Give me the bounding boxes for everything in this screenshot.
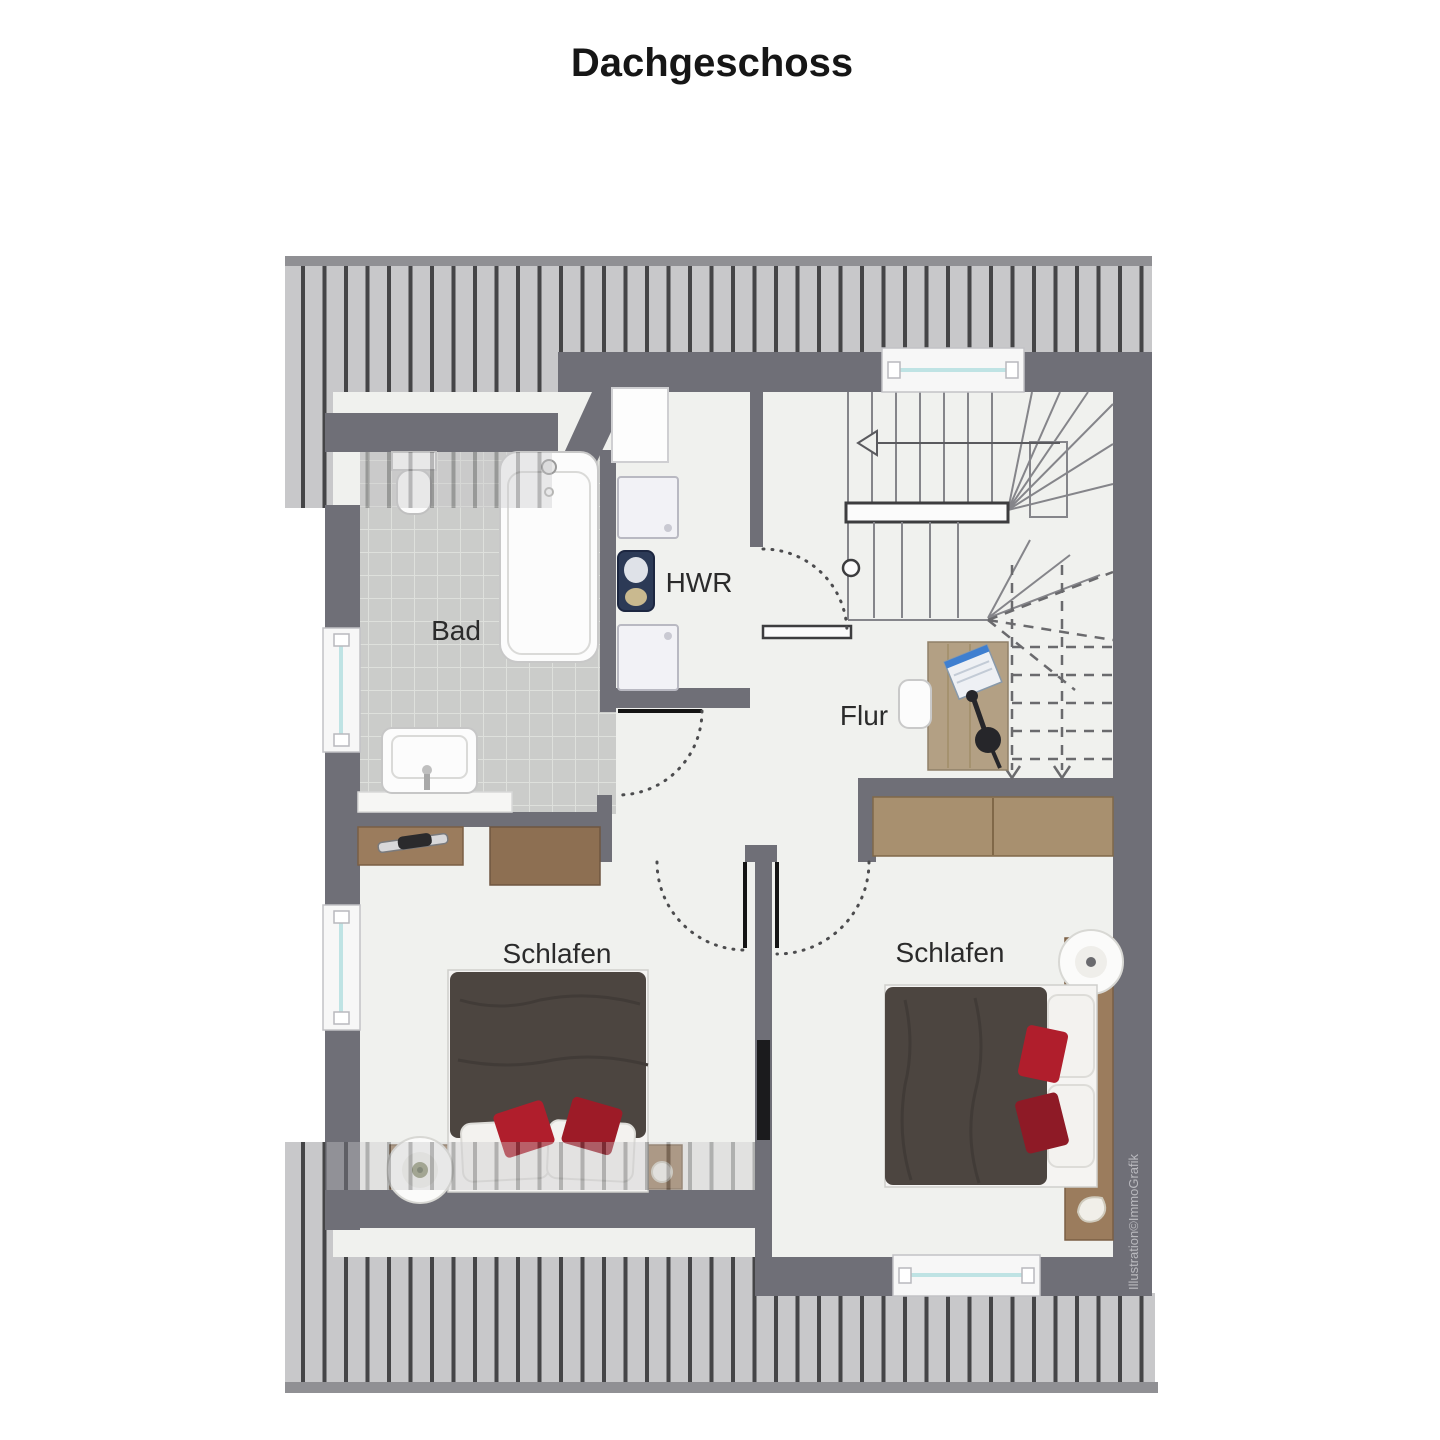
- nightstand-decor-right: [1078, 1197, 1105, 1222]
- wall-divider-head: [745, 845, 777, 862]
- wall-bathroom-bottom: [325, 812, 600, 827]
- stair-handrail: [846, 503, 1008, 522]
- wall-bad-hwr: [600, 450, 616, 712]
- page-title: Dachgeschoss: [571, 41, 853, 85]
- wall-left: [325, 505, 360, 1230]
- dresser: [490, 827, 600, 885]
- window-bathroom: [323, 628, 360, 752]
- page: Dachgeschoss: [0, 0, 1440, 1440]
- sink-faucet: [424, 774, 430, 790]
- wall-divider-accent: [757, 1040, 770, 1140]
- hwr-fixtures: [612, 388, 678, 690]
- room-label-schlafen-right: Schlafen: [896, 937, 1005, 968]
- roof-eave-board: [285, 1382, 1158, 1393]
- room-label-schlafen-left: Schlafen: [503, 938, 612, 969]
- roof-hatch-bottom-left-column: [285, 1142, 325, 1232]
- hwr-door-panel: [612, 388, 668, 462]
- washer-knob-1: [664, 524, 672, 532]
- wall-bedroom-left-bottom: [325, 1190, 755, 1228]
- window-bedroom-left: [323, 905, 360, 1030]
- room-label-flur: Flur: [840, 700, 888, 731]
- roof-ridge-board: [285, 256, 1152, 267]
- laundry-basket: [618, 551, 654, 611]
- wall-bedroom-right-top: [866, 778, 1113, 797]
- roof-hatch-top: [285, 266, 1152, 352]
- roof-overlay-bathroom: [360, 452, 552, 508]
- window-stairwell-top: [882, 348, 1024, 392]
- wall-bathroom-top: [325, 413, 558, 452]
- washer-knob-2: [664, 632, 672, 640]
- wardrobe: [873, 797, 1113, 856]
- stair-newel-post: [843, 560, 859, 576]
- window-bedroom-right: [893, 1255, 1040, 1296]
- desk-chair: [899, 680, 931, 728]
- room-label-hwr: HWR: [666, 567, 733, 598]
- roof-hatch-bottom-right: [772, 1293, 1155, 1384]
- sink: [382, 728, 477, 793]
- floor-plan: Dachgeschoss: [0, 0, 1440, 1440]
- sideboard: [358, 827, 463, 865]
- bed-right: [885, 985, 1097, 1187]
- wall-top: [558, 352, 1152, 392]
- watermark: Illustration©ImmoGrafik: [1126, 1154, 1141, 1290]
- roof-overlay-bedroom-left: [325, 1142, 755, 1190]
- vanity-counter: [358, 792, 512, 812]
- wall-hwr-right: [750, 392, 763, 547]
- room-label-bad: Bad: [431, 615, 481, 646]
